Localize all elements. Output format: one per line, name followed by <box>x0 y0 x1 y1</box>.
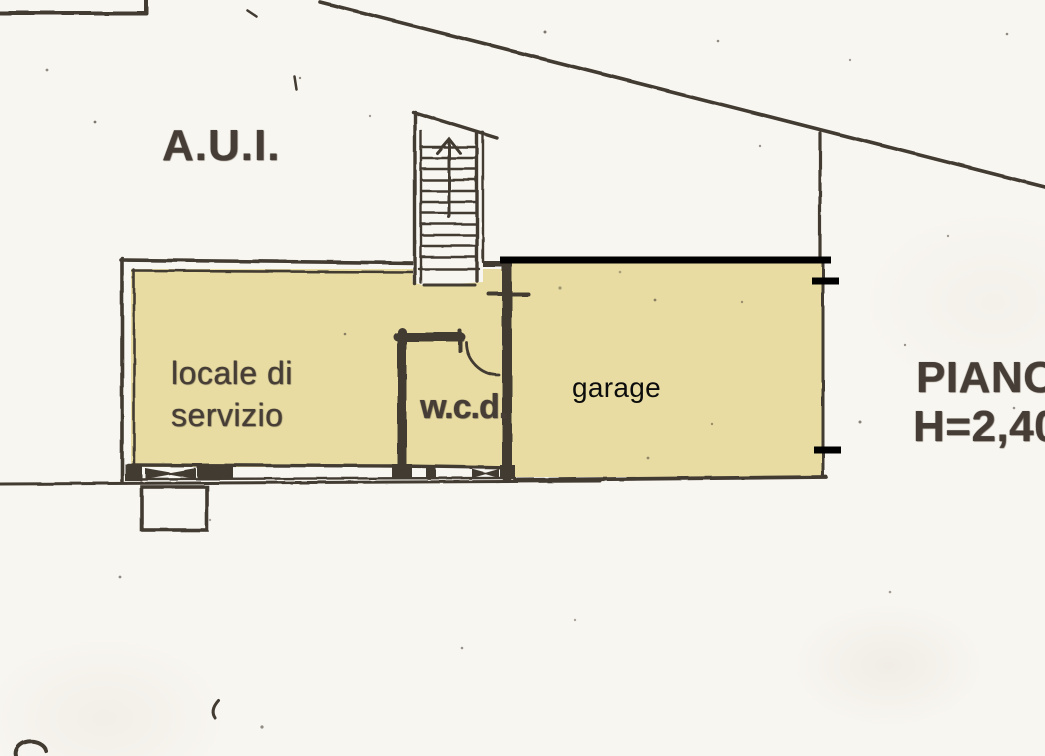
window-bowtie-left-b <box>165 468 196 479</box>
floorplan-scan-page: A.U.I. locale di servizio w.c.d. garage … <box>0 0 1045 756</box>
bottom-wall-top-edge <box>128 465 512 468</box>
scan-stray-mark <box>247 10 256 16</box>
porch-step-rect <box>142 487 207 530</box>
room-label-line1: locale di <box>171 352 293 394</box>
floorplan-drawing <box>0 0 1045 756</box>
scan-stray-paren-mark <box>213 700 218 718</box>
room-garage <box>504 262 823 477</box>
staircase <box>413 111 497 286</box>
ground-line <box>0 481 600 484</box>
room-label-wcd: w.c.d. <box>420 388 507 427</box>
room-label-locale-di-servizio: locale di servizio <box>171 352 293 436</box>
zone-label-aui: A.U.I. <box>162 121 280 171</box>
bottom-wall-sill-edge <box>128 478 515 479</box>
top-wall-outer <box>121 260 417 263</box>
floor-label-piano: PIANO <box>916 353 1045 403</box>
room-label-garage: garage <box>572 372 661 404</box>
room-label-line2: servizio <box>171 394 293 436</box>
scan-stray-mark <box>294 76 296 89</box>
scan-stamp-arc-fragment <box>16 741 46 756</box>
garage-bottom-wall <box>515 477 826 480</box>
floor-height-label: H=2,40 <box>913 402 1045 452</box>
top-wall-inner <box>133 271 417 272</box>
adjacent-plan-corner-line <box>0 0 146 13</box>
window-bowtie-right-b <box>483 469 499 478</box>
